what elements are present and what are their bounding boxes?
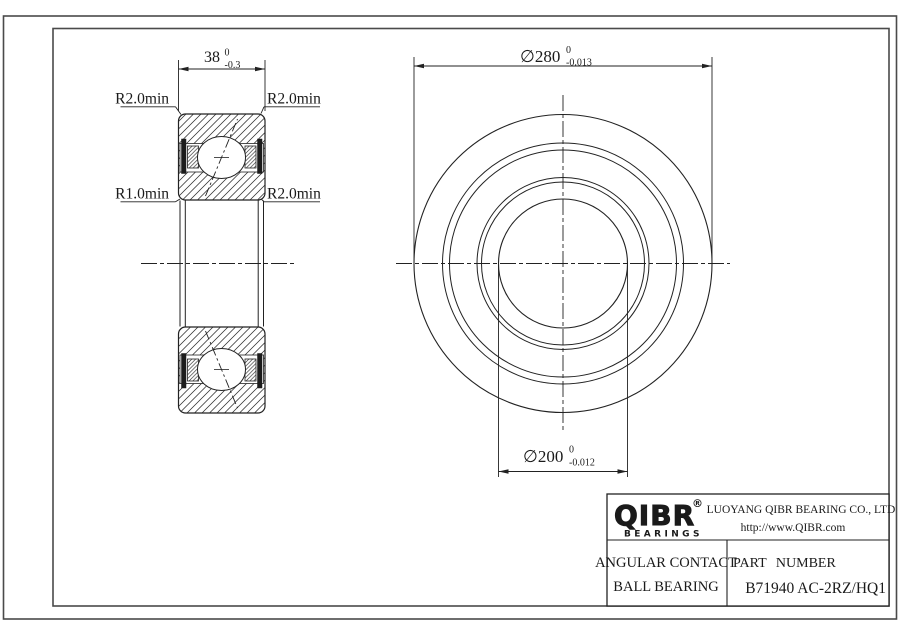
shield-right — [258, 354, 263, 389]
part-number-label: PART NUMBER — [733, 556, 836, 571]
seal-left — [188, 359, 199, 381]
brand-logo: QIBR ® BEARINGS — [614, 497, 703, 540]
section-top-half — [179, 114, 266, 200]
width-value: 38 — [204, 49, 220, 66]
company-website: http://www.QIBR.com — [741, 522, 846, 534]
bore-tol-upper: 0 — [569, 445, 574, 456]
label-top-left: R2.0min — [115, 91, 169, 108]
width-tol-upper: 0 — [225, 48, 230, 59]
shield-left — [182, 354, 187, 389]
registered-trademark-icon: ® — [692, 497, 703, 510]
od-tol-lower: -0.013 — [566, 58, 592, 69]
seal-right — [245, 359, 256, 381]
drawing-sheet: 38 0 -0.3 R2.0min R2.0min R1.0min R2.0mi… — [0, 0, 900, 636]
seal-left — [188, 146, 199, 168]
bearing-drawing: 38 0 -0.3 R2.0min R2.0min R1.0min R2.0mi… — [0, 0, 900, 636]
arrow-left — [499, 469, 509, 474]
product-type-line1: ANGULAR CONTACT — [595, 555, 737, 571]
width-tol-lower: -0.3 — [225, 60, 241, 71]
logo-text: QIBR — [614, 499, 695, 532]
od-value: ∅280 — [520, 47, 560, 66]
company-name: LUOYANG QIBR BEARING CO., LTD — [707, 504, 896, 516]
part-number-value: B71940 AC-2RZ/HQ1 — [745, 580, 886, 597]
product-type-line2: BALL BEARING — [613, 579, 719, 595]
title-block: QIBR ® BEARINGS LUOYANG QIBR BEARING CO.… — [595, 494, 895, 606]
seal-right — [245, 146, 256, 168]
label-bottom-right: R2.0min — [267, 186, 321, 203]
arrow-right — [618, 469, 628, 474]
arrow-right — [702, 64, 712, 69]
label-top-right: R2.0min — [267, 91, 321, 108]
arrow-left — [414, 64, 424, 69]
width-dimension: 38 0 -0.3 — [179, 48, 266, 112]
arrow-left — [179, 67, 189, 71]
label-bottom-left: R1.0min — [115, 186, 169, 203]
front-view: ∅280 0 -0.013 ∅200 0 -0.012 — [396, 45, 730, 477]
od-tol-upper: 0 — [566, 45, 571, 56]
bore-tol-lower: -0.012 — [569, 458, 595, 469]
arrow-right — [255, 67, 265, 71]
shield-left — [182, 139, 187, 174]
bore-value: ∅200 — [523, 447, 563, 466]
section-view: 38 0 -0.3 R2.0min R2.0min R1.0min R2.0mi… — [115, 48, 321, 414]
logo-subtext: BEARINGS — [624, 530, 703, 540]
section-bottom-half — [179, 327, 266, 413]
shield-right — [258, 139, 263, 174]
